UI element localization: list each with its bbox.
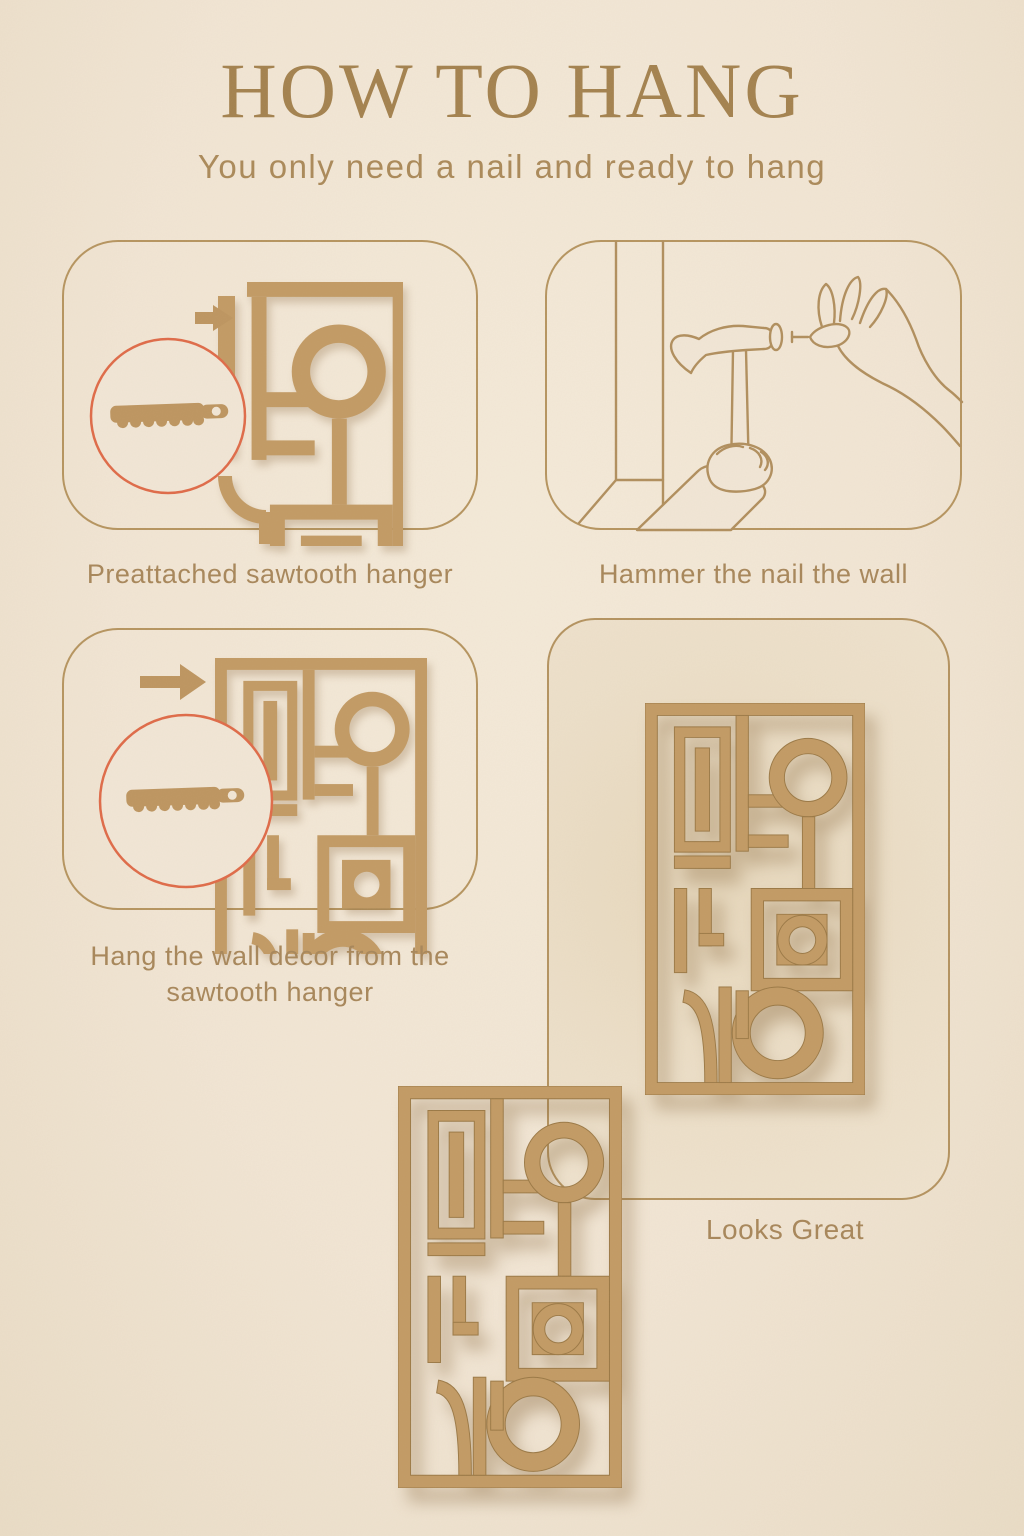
magnifier-circle <box>100 715 272 887</box>
page-subtitle: You only need a nail and ready to hang <box>0 148 1024 186</box>
hand-holding-nail-icon <box>792 277 962 446</box>
step1-illustration <box>62 240 478 562</box>
wall-decor-panel-hung <box>645 703 865 1095</box>
arrow-right-icon <box>140 664 206 700</box>
wall-corner <box>579 242 663 528</box>
hammer-icon <box>637 324 782 530</box>
wall-decor-panel-foreground <box>398 1086 622 1488</box>
step4-caption: Looks Great <box>590 1212 980 1248</box>
how-to-hang-infographic: { "page": { "title": "HOW TO HANG", "sub… <box>0 0 1024 1536</box>
step3-caption: Hang the wall decor from the sawtooth ha… <box>70 938 470 1010</box>
step1-caption: Preattached sawtooth hanger <box>62 556 478 592</box>
magnifier-circle <box>91 339 245 493</box>
page-title: HOW TO HANG <box>0 46 1024 136</box>
step2-caption: Hammer the nail the wall <box>545 556 962 592</box>
step2-illustration <box>545 240 962 530</box>
step3-illustration <box>62 628 478 960</box>
